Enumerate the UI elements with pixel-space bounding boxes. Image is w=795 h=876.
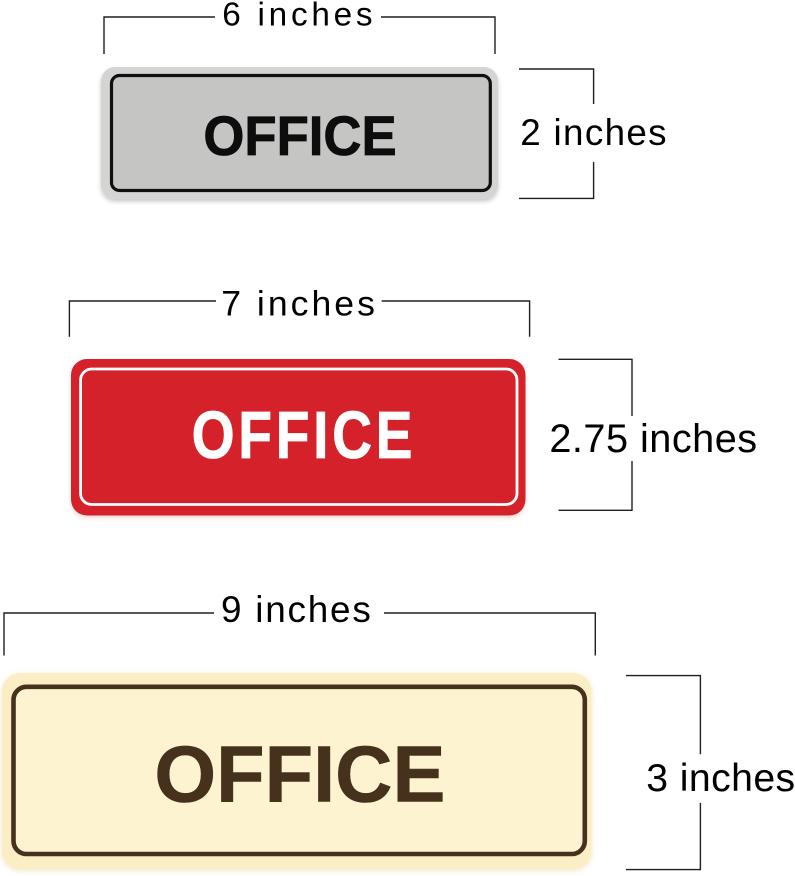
svg-text:9 inches: 9 inches	[221, 589, 373, 630]
svg-text:6 inches: 6 inches	[222, 0, 376, 34]
svg-text:7 inches: 7 inches	[221, 283, 378, 323]
svg-text:3 inches: 3 inches	[646, 757, 795, 800]
svg-text:OFFICE: OFFICE	[154, 730, 445, 819]
svg-text:2.75 inches: 2.75 inches	[549, 417, 757, 461]
svg-text:OFFICE: OFFICE	[203, 106, 396, 168]
svg-text:OFFICE: OFFICE	[192, 398, 416, 472]
svg-text:2 inches: 2 inches	[520, 112, 668, 153]
